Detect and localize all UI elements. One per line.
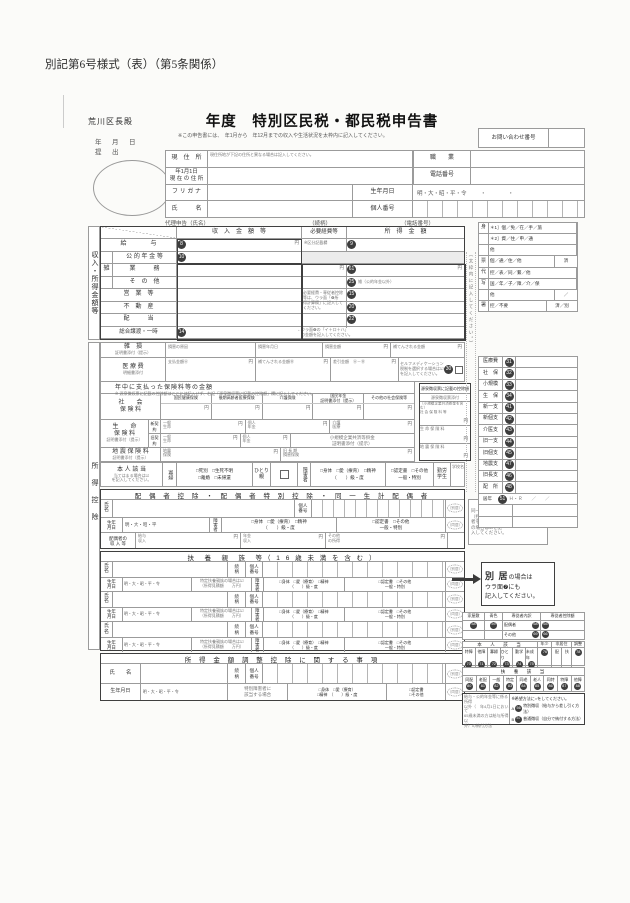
form-code: 別記第6号様式（表）（第5条関係） (45, 56, 223, 72)
social-insurance-label: 社 会 保 険 料 (101, 394, 161, 419)
form-title: 年度 特別区民税・都民税申告書 (172, 112, 472, 128)
birthdate-input[interactable]: 明・大・昭・平・令 ・ ・ (413, 185, 584, 201)
dependent-separate-stamp: （別居） (446, 592, 464, 607)
salary-expense-cell[interactable]: ※区分記載欄 (302, 239, 347, 251)
code-badge: 68 (532, 622, 539, 629)
insurance-block: 年中に支払った保険料等の金額 ※ 源泉徴収票に記載の控除額はここには記入せず、右… (100, 382, 415, 462)
payment-scope-note: 給与・公的年金等に係る所得 以外（ 年4月1日において 65歳未満の方は給与所得… (463, 694, 510, 724)
row-business-label: 業 務 (113, 264, 177, 276)
office-col-char (479, 234, 489, 244)
income-col-header: 所 得 金 額 (347, 227, 464, 238)
dependent-disability-options-1[interactable]: □身体 □愛（療育） □精神 （ ）級・度 (264, 638, 345, 652)
old-contract-label: 旧契約 (149, 434, 160, 447)
dependent-birth-input[interactable]: 明・大・昭・平・令 (123, 578, 193, 592)
life-new-annuity-input[interactable]: 個人 年金円 (246, 420, 331, 433)
income-table: 収 入 金 額 等 必要経費等 所 得 金 額 給 与 8円 ※区分記載欄 9 … (100, 226, 465, 340)
social-col-label: 後期高齢者医療保険 (212, 394, 263, 403)
list-item: 配 所48 (479, 482, 577, 493)
occupation-input[interactable] (471, 151, 584, 167)
selfmed-checkbox[interactable] (455, 366, 463, 374)
blue-return-label: 青色 (485, 613, 503, 620)
payment-option-a[interactable]: A56特別徴収（給与から差し引く方法） (511, 703, 583, 715)
loss-compensated-input[interactable]: 補てんされる金額円 (391, 343, 464, 357)
loss-amount-input[interactable]: 損害金額円 (323, 343, 391, 357)
code-badge: 69 (532, 631, 539, 638)
social-input-4[interactable]: 円 (364, 404, 414, 419)
list-item: 新個支42 (479, 414, 577, 425)
spouse-other-input[interactable]: その他 の所得円 (326, 533, 448, 548)
furigana-label: フ リ ガ ナ (166, 185, 208, 201)
form-subtitle: ※この申告書には、 年1月から 年12月までの収入や生活状況を太枠内に記入してく… (178, 132, 478, 139)
living-apart-word: 別 居 (485, 569, 509, 582)
code-badge: 59 (490, 622, 497, 629)
self-applicable-label: 本 人 該 当当てはまる場合は☑ を記入してください。 (101, 463, 163, 486)
office-row-text: 控／不要 (489, 301, 547, 311)
kubun-note: ※区分記載欄 (304, 240, 327, 246)
dependent-birth-label: 生年 月日 (101, 638, 123, 652)
office-use-grid: 身＊1］個／免／在／手／旅 ＊2］資／住／申／通 他 票個／通／住／他済 代控／… (478, 222, 578, 312)
list-item: 新一支41 (479, 403, 577, 414)
dep-badge: 特定83 (504, 676, 518, 691)
social-col-label: 国民健康保険 (161, 394, 212, 403)
income-table-corner (101, 227, 177, 238)
social-input-2[interactable]: 円 (263, 404, 314, 419)
adjustment-title: 所 得 金 額 調 整 控 除 に 関 す る 事 項 (101, 654, 464, 664)
dep-badge: 同特86 (544, 676, 558, 691)
jan1-address-input[interactable] (208, 168, 413, 184)
self-badges-grid: 本 人 該 当 年少 非居住 調整 特障70 他障71 寡婦72 ひとり73 勤… (462, 641, 585, 666)
dividend-income-input[interactable]: 22 (347, 314, 464, 326)
deduction-amount-input[interactable] (516, 482, 577, 492)
spouse-birth-label: 生年 月日 (101, 518, 123, 533)
spouse-disability-label: 障害者 (210, 518, 222, 533)
casualty-label: 雑 損証明書添付（提示） (101, 343, 166, 357)
spouse-name-input[interactable] (113, 500, 295, 517)
office-row-text: 他 (489, 290, 555, 300)
expense-note-cell (302, 314, 347, 326)
addressee: 荒川区長殿 (88, 116, 133, 127)
code-badge: 57 (515, 716, 522, 723)
dependent-block: 氏 名 続 柄 個人 番号 （別居） 生年 月日 明・大・昭・平・令 特定扶養親… (101, 592, 464, 622)
living-apart-text: の場合は (509, 572, 533, 581)
loss-date-input[interactable]: 損害年月日 (256, 343, 323, 357)
field-no-10: 10 (177, 253, 186, 262)
dependent-tokutei-note[interactable]: 特定扶養親族の場合は☑ （所得見積額 万円） (192, 638, 252, 652)
social-input-3[interactable]: 円 (313, 404, 364, 419)
dependent-name-label: 氏 名 (101, 622, 113, 637)
deduction-amount-input[interactable] (516, 403, 577, 413)
name-label: 氏 名 (166, 201, 208, 217)
deduction-codes-list: 医療費31 社 保32 小規模33 生 保34 新一支41 新個支42 介医支4… (478, 356, 578, 528)
field-no-8: 8 (177, 240, 186, 249)
birthdate-label: 生年月日 (353, 185, 413, 201)
living-apart-note-box: 別 居の場合は ウラ面❼にも 記入してください。 (481, 562, 555, 606)
code-badge: 45 (505, 449, 514, 458)
current-address-label: 現 住 所 (166, 151, 208, 167)
list-item: 小規模33 (479, 380, 577, 391)
realestate-income-input[interactable]: 20 (347, 302, 464, 314)
office-col-char: 票 (479, 256, 489, 266)
dependents-grid-title: 扶 養 該 当 (463, 668, 584, 676)
code-badge: 41 (505, 403, 514, 412)
scanned-tax-form-page: { "form_code": "別記第6号様式（表）（第5条関係）", "yen… (0, 0, 630, 903)
widow-options[interactable]: □死別 □生死不明 □離婚 □未帰還 (177, 463, 253, 486)
row-salary-label: 給 与 (101, 239, 177, 251)
dependent-tokutei-note[interactable]: 特定扶養親族の場合は☑ （所得見積額 万円） (192, 578, 252, 592)
adjustment-name-input[interactable] (141, 664, 229, 683)
salary-revenue-input[interactable]: 8円 (177, 239, 302, 251)
occupation-label: 職 業 (413, 151, 471, 167)
vertical-note: （太枠内に記入してください。） (466, 252, 476, 492)
row-other-label: そ の 他 (113, 277, 177, 289)
dependent-disability-label: 障害者 (252, 638, 264, 652)
dependent-name-label: 氏 名 (101, 592, 113, 607)
office-row-text: 国／年／子／障／介／保 (489, 279, 577, 289)
dep-badge: 同老84 (517, 676, 531, 691)
submit-date-label: 年 月 日 (95, 138, 138, 148)
widow-label: 寡婦 (163, 463, 177, 486)
quake-input[interactable]: 地震 保険円 (161, 448, 281, 461)
trade-income-input[interactable]: 15 (347, 289, 464, 301)
dependent-mynumber-input[interactable] (263, 562, 446, 577)
realestate-revenue-input[interactable] (177, 302, 302, 314)
yen-mark: 円 (458, 265, 463, 271)
dependent-disability-options-2[interactable]: □認定書 □その他 一般・特別 (345, 638, 446, 652)
spouse-employee-label: 配偶者 (504, 622, 516, 628)
adjustment-birth-label: 生年月日 (101, 684, 141, 700)
office-row-right: ／ (555, 290, 577, 300)
dependent-tokutei-note[interactable]: 特定扶養親族の場合は☑ （所得見積額 万円） (192, 608, 252, 622)
office-col-char (479, 245, 489, 255)
adjustment-relation-label: 続 柄 (228, 664, 246, 683)
header-table: 現 住 所 現住所地が下記の住所と異なる場合は記入してください。 職 業 年1月… (165, 150, 585, 218)
disability-label: 障害者 (298, 463, 311, 486)
office-col-char: 身 (479, 223, 489, 233)
deduction-amount-input[interactable] (516, 448, 577, 458)
zatsu-group-label: 雑 (101, 264, 113, 276)
casualty-loss-row: 雑 損証明書添付（提示） 損害の原因 損害年月日 損害金額円 補てんされる金額円 (100, 342, 465, 358)
submit-label: 提 出 (95, 148, 138, 158)
single-parent-checkbox[interactable] (280, 470, 289, 479)
deduction-amount-input[interactable] (516, 368, 577, 378)
list-item: 生 保34 (479, 391, 577, 402)
current-address-note: 現住所地が下記の住所と異なる場合は記入してください。 (210, 152, 314, 158)
other-employee-amount[interactable]: 66 (541, 631, 584, 640)
nonresident-label: 非居住 (552, 642, 572, 647)
life-old-general-input[interactable]: 一般 生命円 (161, 434, 241, 447)
list-item: 旧長支46 (479, 471, 577, 482)
dependent-name-input[interactable] (113, 622, 228, 637)
business-income-input[interactable]: 61円 (347, 264, 464, 276)
dependent-disability-label: 障害者 (252, 578, 264, 592)
life-new-care-input[interactable]: 介護 医療円 (330, 420, 414, 433)
dependent-block: 氏 名 続 柄 個人 番号 （別居） 生年 月日 明・大・昭・平・令 特定扶養親… (101, 562, 464, 592)
expense-col-header: 必要経費等 (302, 227, 347, 238)
inquiry-number-input[interactable] (549, 129, 584, 147)
deduction-amount-input[interactable] (516, 460, 577, 470)
dependent-birth-input[interactable]: 明・大・昭・平・令 (123, 638, 193, 652)
adjustment-mynumber-input[interactable] (263, 664, 446, 683)
transfer-revenue-input[interactable]: 14 (177, 327, 302, 339)
office-col-char: 署 (479, 301, 489, 311)
dependent-disability-label: 障害者 (252, 608, 264, 622)
social-input-1[interactable]: 円 (212, 404, 263, 419)
withholding-title: 源泉徴収票に記載の控除額 (420, 384, 470, 394)
dependent-block: 氏 名 続 柄 個人 番号 （別居） 生年 月日 明・大・昭・平・令 特定扶養親… (101, 622, 464, 652)
yen-mark: 円 (340, 265, 345, 271)
zatsu-group-cell (101, 277, 113, 289)
disability-options-2[interactable]: □認定書 □その他 一般・特別 (386, 463, 434, 486)
mynumber-input[interactable] (413, 201, 584, 217)
other-income-note: 雑（公的年金以外） (358, 279, 394, 285)
other-income-input[interactable]: 25雑（公的年金以外） (347, 277, 464, 289)
phone-input[interactable] (471, 168, 584, 184)
old-longterm-input[interactable]: 旧 長 期 損害保険円 (281, 448, 414, 461)
field-no-30: 30 (444, 365, 453, 374)
loss-cause-input[interactable]: 損害の原因 (166, 343, 256, 357)
office-row-text: 個／通／住／他 (489, 256, 555, 266)
transfer-note: ←ウラ面❻の「イ＋ロ＋ハ」 の金額を記入してください。 (297, 328, 367, 338)
pension-revenue-input[interactable]: 10 (177, 252, 302, 264)
dependents-section: 扶 養 親 族 等（ 1 6 歳 未 満 を 含 む ） 氏 名 続 柄 個人 … (100, 551, 465, 651)
special-disability-label: 特別障害者に 該当する場合 (228, 684, 288, 700)
era-date-dots: ・ ・ (481, 189, 514, 201)
business-revenue-input[interactable] (177, 264, 302, 276)
life-old-annuity-input[interactable]: 個人 年金円 (241, 434, 291, 447)
dependent-name-input[interactable] (113, 562, 228, 577)
zatsu-group-cell (101, 252, 113, 264)
dep-badge: 老人85 (531, 676, 545, 691)
code-badge: 46 (505, 472, 514, 481)
selfmed-note: セルフメディケーション 税制を選択する場合は☑ を記入してください。 (400, 362, 444, 376)
jan1-address-label: 年1月1日 現 在 の 住 所 (166, 168, 208, 184)
code-badge: 58 (470, 622, 477, 629)
adjustment-mynumber-label: 個人 番号 (246, 664, 263, 683)
code-badge: 48 (505, 483, 514, 492)
medical-paid-input[interactable]: 支払金額Ⓐ円 (166, 358, 256, 381)
deduction-amount-input[interactable] (516, 471, 577, 481)
dependent-disability-options-1[interactable]: □身体 □愛（療育） □精神 （ ）級・度 (264, 578, 345, 592)
dependents-badges-grid: 扶 養 該 当 同配80 老配81 一般82 特定83 同老84 老人85 同特… (462, 667, 585, 692)
deduction-amount-input[interactable] (516, 437, 577, 447)
mynumber-label: 個人番号 (353, 201, 413, 217)
dependent-mynumber-input[interactable] (263, 622, 446, 637)
field-no-14: 14 (177, 328, 186, 337)
empty-cell[interactable] (513, 517, 577, 527)
other-expense-input[interactable] (302, 277, 347, 289)
spouse-employee-amount[interactable]: 65 (541, 621, 584, 630)
code-badge: 31 (505, 358, 514, 367)
code-badge: 66 (542, 631, 549, 638)
income-section-rail: 収入・所得金額等 (89, 227, 99, 339)
dep-badge: 一般82 (490, 676, 504, 691)
selfmed-cell: セルフメディケーション 税制を選択する場合は☑ を記入してください。 30 (399, 358, 464, 381)
working-student-label: 勤労 学生 (434, 463, 451, 486)
spouse-birth-input[interactable]: 明・大・昭・平 (123, 518, 211, 533)
spouse-together-stamp: （同居） (446, 518, 464, 533)
social-input-0[interactable]: 円 (161, 404, 212, 419)
living-apart-text: ウラ面❼にも (485, 582, 551, 591)
medical-compensated-input[interactable]: 補てんされる金額Ⓑ円 (256, 358, 331, 381)
adjustment-name-label: 氏 名 (101, 664, 141, 683)
dependent-birth-label: 生年 月日 (101, 578, 123, 592)
list-item: 旧一支44 (479, 437, 577, 448)
list-item: 旧個支45 (479, 448, 577, 459)
deduction-amount-input[interactable] (516, 391, 577, 401)
single-parent-label: ひとり 親 (253, 463, 271, 486)
dependent-mynumber-label: 個人 番号 (246, 622, 263, 637)
life-new-general-input[interactable]: 一般 生命円 (161, 420, 246, 433)
dependent-relation-label: 続 柄 (228, 622, 246, 637)
code-badge: 32 (505, 369, 514, 378)
deduction-amount-input[interactable] (516, 425, 577, 435)
code-badge: 33 (505, 381, 514, 390)
payment-method-box: 給与・公的年金等に係る所得 以外（ 年4月1日において 65歳未満の方は給与所得… (462, 693, 585, 725)
code-badge: 56 (515, 705, 522, 712)
dep-badge: 老配81 (477, 676, 491, 691)
residence-year-input[interactable]: Ｈ・Ｒ ／ ／ (509, 494, 577, 504)
yen-mark: 円 (295, 240, 300, 246)
empty-cell[interactable] (513, 505, 577, 515)
adjustment-birth-input[interactable]: 明・大・昭・平・令 (141, 684, 229, 700)
dependents-title: 扶 養 親 族 等（ 1 6 歳 未 満 を 含 む ） (101, 552, 464, 562)
employee-deduction-label: 専従者控除額 (541, 613, 584, 620)
row-transfer-label: 総合譲渡・一時 (101, 327, 177, 339)
insurance-title: 年中に支払った保険料等の金額 (115, 382, 414, 391)
receipt-stamp-area (93, 160, 171, 216)
dependent-mynumber-input[interactable] (263, 592, 446, 607)
dependent-relation-label: 続 柄 (228, 592, 246, 607)
quake-insurance-label: 地 震 保 険 料証明書添付（提示） (101, 448, 161, 461)
dep-badge: 同配80 (463, 676, 477, 691)
code-badge: 65 (542, 622, 549, 629)
office-row-text: 他 (489, 245, 577, 255)
deduction-amount-input[interactable] (516, 380, 577, 390)
payment-option-b[interactable]: B57普通徴収（自分で納付する方法） (511, 716, 583, 723)
field-no-22: 22 (347, 315, 356, 324)
spouse-disability-options-2[interactable]: □認定書 □その他 一般・特別 (337, 518, 446, 533)
field-no-15: 15 (347, 290, 356, 299)
name-input[interactable] (208, 201, 353, 217)
office-row-text: ＊1］個／免／在／手／旅 (489, 223, 577, 233)
withholding-life-input[interactable]: 生 命 保 険 料円 (420, 426, 470, 443)
spouse-title: 配 偶 者 控 除 ・ 配 偶 者 特 別 控 除 ・ 同 一 生 計 配 偶 … (101, 490, 464, 500)
revenue-col-header: 収 入 金 額 等 (177, 227, 302, 238)
list-item: 地震支47 (479, 460, 577, 471)
phone-label: 電話番号 (413, 168, 471, 184)
adjustment-disability-options-2[interactable]: □認定書 □その他 (387, 684, 446, 700)
field-no-61: 61 (347, 265, 356, 274)
new-contract-label: 新契約 (149, 420, 160, 434)
adjustment-disability-options-1[interactable]: □身体 □愛（療育） □精神 （ ）級・度 (288, 684, 387, 700)
self-applicable-row: 本 人 該 当当てはまる場合は☑ を記入してください。 寡婦 □死別 □生死不明… (100, 462, 465, 487)
dependent-birth-label: 生年 月日 (101, 608, 123, 622)
dependent-separate-stamp: （別居） (446, 562, 464, 577)
dependent-disability-options-1[interactable]: □身体 □愛（療育） □精神 （ ）級・度 (264, 608, 345, 622)
adjustment-section: 所 得 金 額 調 整 控 除 に 関 す る 事 項 氏 名 続 柄 個人 番… (100, 653, 465, 701)
medical-diff-input[interactable]: 差引金額 Ⓐ－Ⓑ円 (331, 358, 399, 381)
business-expense-input[interactable]: 円 (302, 264, 347, 276)
life-insurance-label: 生 命 保 険 料証明書添付（提示） (101, 420, 149, 447)
social-col-label: その他の社会保険等 (364, 394, 414, 403)
dependent-mynumber-label: 個人 番号 (246, 562, 263, 577)
deduction-amount-input[interactable] (516, 357, 577, 367)
dividend-revenue-input[interactable] (177, 314, 302, 326)
salary-income-input[interactable]: 9 (347, 239, 464, 251)
employee-breakdown-label: 専従者内訳 (503, 613, 541, 620)
deduction-amount-input[interactable] (516, 414, 577, 424)
office-col-char (479, 290, 489, 300)
dependent-disability-options-2[interactable]: □認定書 □その他 一般・特別 (345, 578, 446, 592)
list-item: 社 保32 (479, 368, 577, 379)
code-badge: 42 (505, 415, 514, 424)
medical-row: 医 療 費明細書添付 支払金額Ⓐ円 補てんされる金額Ⓑ円 差引金額 Ⓐ－Ⓑ円 セ… (100, 358, 465, 382)
code-badge: 51 (498, 495, 507, 504)
school-name-input[interactable]: 学校名 (451, 463, 464, 486)
current-address-input[interactable]: 現住所地が下記の住所と異なる場合は記入してください。 (208, 151, 413, 167)
code-badge: 34 (505, 392, 514, 401)
list-item (479, 517, 577, 527)
spouse-pension-input[interactable]: 年金 収入円 (241, 533, 326, 548)
medical-label: 医 療 費明細書添付 (101, 358, 166, 381)
field-no-9: 9 (347, 240, 356, 249)
field-no-25: 25 (347, 278, 356, 287)
code-badge: 44 (505, 438, 514, 447)
dependent-birth-input[interactable]: 明・大・昭・平・令 (123, 608, 193, 622)
spouse-mynumber-input[interactable] (312, 500, 446, 517)
spouse-income-label: 配偶者の 収 入 等 (101, 533, 136, 548)
spouse-salary-input[interactable]: 給与 収入円 (136, 533, 241, 548)
other-employee-label: その他 (504, 632, 516, 638)
payment-instruction: ※希望方法に○をしてください。 (511, 696, 583, 702)
other-revenue-input[interactable] (177, 277, 302, 289)
social-col-label: 国民年金 証明書添付（提示） (313, 394, 364, 403)
single-parent-checkbox-cell (271, 463, 298, 486)
code-badge: 43 (505, 426, 514, 435)
dependent-disability-options-2[interactable]: □認定書 □その他 一般・特別 (345, 608, 446, 622)
withholding-quake-input[interactable]: 地 震 保 険 料円 (420, 444, 470, 460)
dep-badge: 特障87 (558, 676, 572, 691)
office-row-text: ＊2］資／住／申／通 (489, 234, 577, 244)
dependent-name-input[interactable] (113, 592, 228, 607)
arrow-stem (452, 578, 474, 581)
deduction-section-rail: 所得控除 (89, 343, 99, 649)
furigana-input[interactable] (208, 185, 353, 201)
spouse-name-label: 氏 名 (101, 500, 113, 517)
withholding-social-input[interactable]: （小規模企業共済掛金を含む） 社 会 保 険 料 等円 (420, 402, 470, 426)
family-employee-grid: 家屋敷 青色 専従者内訳 専従者控除額 58 59 配偶者68 65 その他69… (462, 612, 585, 640)
row-realestate-label: 不 動 産 (101, 302, 177, 314)
chosei-label: 調整 (572, 642, 584, 647)
trade-revenue-input[interactable] (177, 289, 302, 301)
house-label: 家屋敷 (463, 613, 485, 620)
office-row-right: 済／別 (547, 301, 577, 311)
expense-note: 必要経費・専従者控除 等は、ウラ面「❻所 得計算欄」に記入して ください。 (303, 290, 347, 310)
mutual-aid-label[interactable]: 小規模企業共済等掛金 証明書添付（提示） (291, 434, 415, 447)
dependent-name-label: 氏 名 (101, 562, 113, 577)
field-no-20: 20 (347, 303, 356, 312)
row-trade-label: 営 業 等 (101, 289, 177, 301)
office-col-char: 代 (479, 268, 489, 278)
inquiry-number-label: お問い合わせ番号 (479, 129, 549, 147)
era-options: 明・大・昭・平・令 (417, 189, 467, 201)
list-item: 居年51Ｈ・Ｒ ／ ／ (479, 494, 577, 505)
scan-mark (63, 95, 64, 128)
spouse-disability-options-1[interactable]: □身体 □愛（療育） □精神 （ ）級・度 (222, 518, 336, 533)
office-col-char: 写 (479, 279, 489, 289)
disability-options-1[interactable]: □身体 □愛（療育） □精神 （ ）級・度 (311, 463, 386, 486)
dependent-relation-label: 続 柄 (228, 562, 246, 577)
